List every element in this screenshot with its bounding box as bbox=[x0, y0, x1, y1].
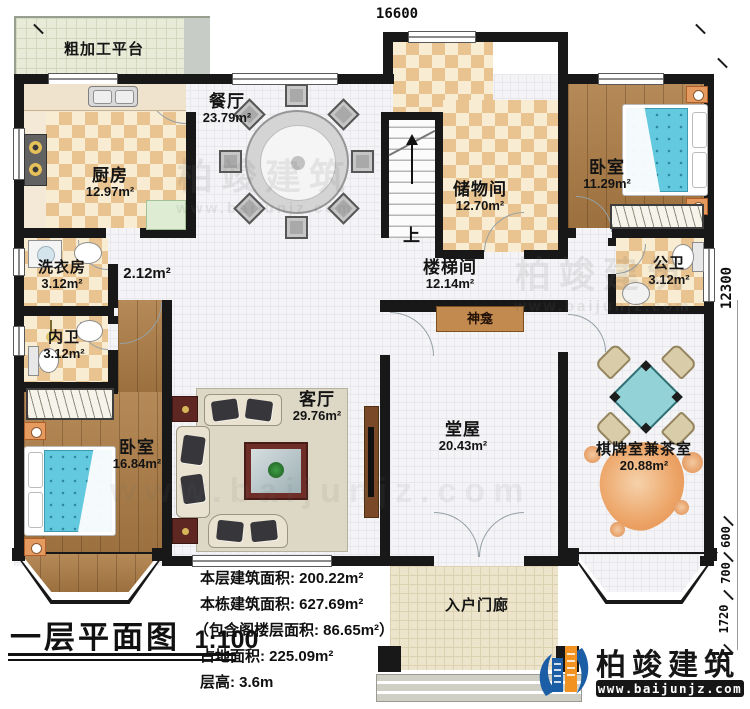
tv-screen bbox=[368, 427, 374, 497]
wall-public-bath-west-a bbox=[608, 238, 616, 246]
game-room-name: 棋牌室兼茶室 bbox=[572, 442, 716, 459]
stairs-up-text: 上 bbox=[398, 226, 426, 245]
stat-line: 层高: 3.6m bbox=[200, 670, 394, 696]
living-name: 客厅 bbox=[262, 390, 372, 409]
room-label-laundry: 洗衣房 3.12m² bbox=[16, 260, 108, 291]
room-label-public-bath: 公卫 3.12m² bbox=[630, 256, 708, 287]
dining-chair bbox=[219, 150, 242, 173]
side-table-plant bbox=[182, 406, 189, 413]
wall-laundry-bath-divider bbox=[14, 306, 114, 316]
room-label-stair-hall: 楼梯间 12.14m² bbox=[394, 258, 506, 292]
public-bath-area: 3.12m² bbox=[630, 273, 708, 288]
laundry-name: 洗衣房 bbox=[16, 260, 108, 277]
dim-right-total: 12300 bbox=[719, 261, 735, 315]
stair-hall-name: 楼梯间 bbox=[394, 258, 506, 277]
nightstand bbox=[24, 422, 46, 440]
kitchen-prep-board bbox=[146, 200, 186, 230]
bed-ne-pillow bbox=[692, 112, 707, 148]
wall-stairs-west bbox=[381, 112, 389, 238]
nightstand bbox=[24, 538, 46, 556]
sink-basin bbox=[93, 90, 112, 104]
stove-burner bbox=[29, 141, 42, 154]
dining-chair bbox=[285, 216, 308, 239]
stat-line: （包含阁楼层面积: 86.65m²） bbox=[194, 618, 394, 644]
public-bath-name: 公卫 bbox=[630, 256, 708, 273]
stairs-up-label: 上 bbox=[398, 226, 426, 245]
room-label-porch: 入户门廊 bbox=[414, 598, 540, 615]
stat-line: 本层建筑面积: 200.22m² bbox=[200, 566, 394, 592]
porch-floor bbox=[390, 566, 558, 670]
room-label-bedroom-ne: 卧室 11.29m² bbox=[552, 158, 662, 192]
kitchen-name: 厨房 bbox=[60, 166, 160, 185]
dining-chair bbox=[285, 84, 308, 107]
wall-corridor-stub bbox=[558, 238, 568, 252]
kitchen-stove bbox=[24, 134, 47, 186]
sofa-cushion bbox=[180, 474, 206, 505]
room-label-platform: 粗加工平台 bbox=[38, 42, 170, 59]
company-name: 柏竣建筑 bbox=[596, 640, 740, 684]
logo-block: 柏竣建筑 www.baijunjz.com bbox=[538, 636, 744, 704]
sofa-cushion bbox=[216, 520, 244, 543]
game-room-area: 20.88m² bbox=[572, 459, 716, 474]
private-bath-area: 3.12m² bbox=[20, 347, 108, 362]
platform-gray-section bbox=[184, 18, 210, 74]
room-label-storage: 储物间 12.70m² bbox=[420, 180, 540, 214]
sofa-cushion bbox=[211, 398, 240, 421]
room-label-corridor: 2.12m² bbox=[102, 266, 192, 283]
bed-sw-pillow bbox=[28, 452, 43, 488]
shrine-label: 神龛 bbox=[467, 311, 493, 326]
rug-pebble bbox=[674, 500, 689, 515]
bedroom-sw-name: 卧室 bbox=[82, 438, 192, 457]
main-hall-name: 堂屋 bbox=[404, 420, 522, 439]
company-logo-icon bbox=[538, 638, 590, 702]
room-label-kitchen: 厨房 12.97m² bbox=[60, 166, 160, 200]
wall-hall-game-divider bbox=[558, 352, 568, 556]
stat-line: 占地面积: 225.09m² bbox=[200, 644, 394, 670]
stats-block: 本层建筑面积: 200.22m² 本栋建筑面积: 627.69m² （包含阁楼层… bbox=[200, 566, 394, 696]
dining-table bbox=[245, 110, 349, 214]
wall-public-bath-south bbox=[608, 306, 714, 314]
bedroom-sw-area: 16.84m² bbox=[82, 457, 192, 472]
platform-name: 粗加工平台 bbox=[38, 42, 170, 59]
side-table bbox=[172, 396, 198, 422]
coffee-table bbox=[244, 442, 308, 500]
wall-living-hall-divider bbox=[380, 355, 390, 556]
window-bedroom-ne-north bbox=[598, 73, 664, 85]
dim-tick bbox=[695, 24, 706, 35]
private-bath-name: 内卫 bbox=[20, 330, 108, 347]
sofa-cushion bbox=[250, 520, 278, 543]
dim-tick bbox=[717, 58, 728, 69]
window-storage-north bbox=[408, 31, 476, 43]
corridor-area: 2.12m² bbox=[102, 266, 192, 283]
side-table-plant bbox=[182, 528, 189, 535]
wall-kitchen-south-a bbox=[14, 228, 106, 238]
sink-basin bbox=[115, 90, 134, 104]
wall-bedroom-sw-east bbox=[162, 300, 172, 556]
wardrobe-sw bbox=[26, 388, 114, 420]
dining-name: 餐厅 bbox=[172, 92, 282, 111]
kitchen-sink bbox=[88, 86, 138, 107]
wall-bedroom-ne-south-b bbox=[612, 228, 714, 238]
floor-plan-canvas: 上 bbox=[0, 0, 750, 709]
laundry-area: 3.12m² bbox=[16, 277, 108, 292]
room-label-private-bath: 内卫 3.12m² bbox=[20, 330, 108, 361]
room-label-dining: 餐厅 23.79m² bbox=[172, 92, 282, 126]
plan-title: 一层平面图 bbox=[10, 620, 180, 655]
kitchen-area: 12.97m² bbox=[60, 185, 160, 200]
dim-top-width: 16600 bbox=[352, 6, 442, 22]
room-label-main-hall: 堂屋 20.43m² bbox=[404, 420, 522, 454]
side-table bbox=[172, 518, 198, 544]
stair-hall-area: 12.14m² bbox=[394, 277, 506, 292]
wall-storage-west-jut bbox=[383, 32, 393, 82]
stat-line: 本栋建筑面积: 627.69m² bbox=[200, 592, 394, 618]
room-label-bedroom-sw: 卧室 16.84m² bbox=[82, 438, 192, 472]
bed-ne-pillow bbox=[692, 152, 707, 188]
room-label-living: 客厅 29.76m² bbox=[262, 390, 372, 424]
wall-south-game-right bbox=[700, 556, 714, 566]
wardrobe-ne bbox=[610, 204, 704, 229]
wall-south-game-left bbox=[560, 556, 578, 566]
bedroom-ne-area: 11.29m² bbox=[552, 177, 662, 192]
rug-pebble bbox=[610, 522, 625, 537]
storage-name: 储物间 bbox=[420, 180, 540, 199]
sofa-two-seat bbox=[208, 514, 288, 548]
wall-private-bath-east-a bbox=[108, 316, 118, 324]
company-website: www.baijunjz.com bbox=[596, 680, 744, 697]
porch-name: 入户门廊 bbox=[414, 598, 540, 615]
room-label-game-room: 棋牌室兼茶室 20.88m² bbox=[572, 442, 716, 473]
stairs-arrow-head bbox=[406, 128, 418, 145]
dining-centerpiece bbox=[291, 156, 305, 170]
bedroom-ne-name: 卧室 bbox=[552, 158, 662, 177]
living-area: 29.76m² bbox=[262, 409, 372, 424]
table-plant bbox=[268, 462, 284, 478]
dim-line-right bbox=[737, 300, 738, 650]
wall-bedroom-ne-south-a bbox=[558, 228, 576, 238]
stove-burner bbox=[29, 163, 42, 176]
dining-chair bbox=[351, 150, 374, 173]
bed-sw-pillow bbox=[28, 492, 43, 528]
storage-area: 12.70m² bbox=[420, 199, 540, 214]
wall-stairs-top bbox=[381, 112, 443, 120]
dining-area: 23.79m² bbox=[172, 111, 282, 126]
wall-south-hall-left bbox=[390, 556, 434, 566]
shrine-shelf: 神龛 bbox=[436, 306, 524, 332]
wall-kitchen-dining bbox=[186, 112, 196, 238]
nightstand bbox=[686, 86, 708, 103]
main-hall-area: 20.43m² bbox=[404, 439, 522, 454]
